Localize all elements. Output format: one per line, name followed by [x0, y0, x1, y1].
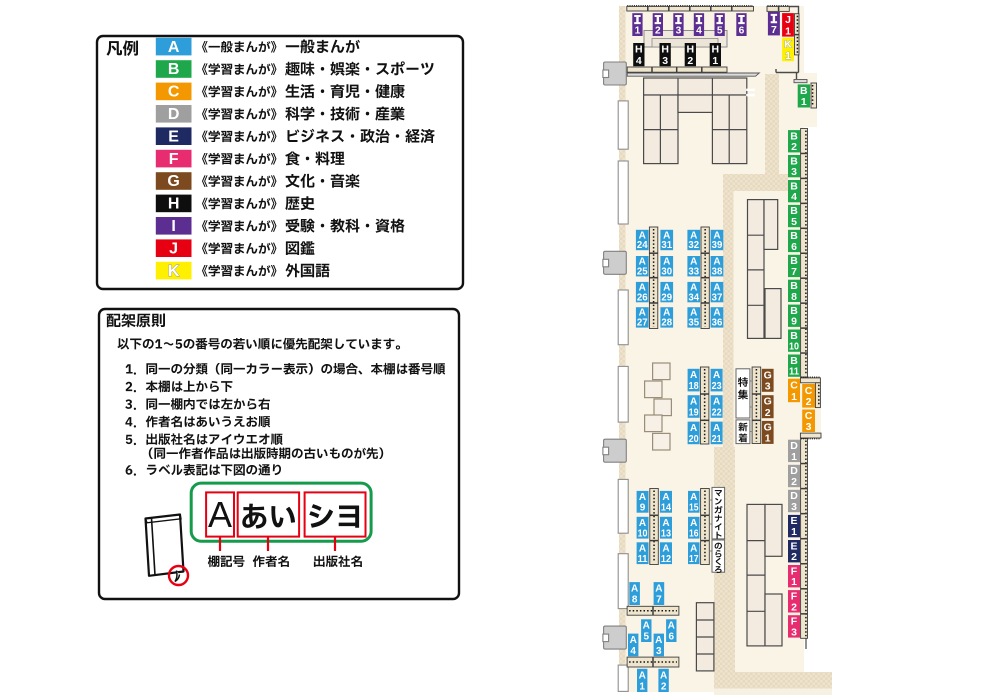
svg-text:1: 1: [785, 50, 791, 62]
svg-text:H: H: [712, 44, 720, 56]
svg-text:21: 21: [712, 434, 722, 445]
svg-text:29: 29: [661, 292, 672, 303]
svg-text:A: A: [639, 543, 646, 554]
svg-text:2: 2: [791, 476, 797, 488]
svg-text:A: A: [713, 370, 720, 381]
svg-text:A: A: [168, 39, 180, 56]
svg-text:13: 13: [661, 528, 671, 539]
svg-text:31: 31: [661, 240, 672, 251]
svg-text:1: 1: [791, 576, 797, 588]
svg-text:14: 14: [661, 503, 671, 514]
svg-text:J: J: [785, 14, 791, 26]
svg-text:6: 6: [739, 26, 745, 37]
svg-text:2: 2: [791, 551, 797, 563]
svg-text:16: 16: [689, 528, 699, 539]
svg-text:5: 5: [791, 216, 797, 228]
svg-text:G: G: [167, 173, 179, 190]
svg-text:2: 2: [765, 407, 771, 419]
svg-text:1: 1: [791, 391, 797, 403]
svg-text:A: A: [690, 518, 697, 529]
svg-text:A: A: [713, 423, 720, 434]
svg-text:2: 2: [687, 55, 693, 67]
svg-text:5: 5: [644, 632, 650, 643]
svg-text:H: H: [168, 196, 180, 213]
svg-text:22: 22: [712, 408, 722, 419]
svg-text:A: A: [690, 492, 697, 503]
svg-text:15: 15: [689, 503, 699, 514]
svg-text:6: 6: [669, 632, 675, 643]
svg-text:7: 7: [771, 24, 777, 36]
svg-text:1: 1: [639, 682, 645, 693]
svg-text:H: H: [661, 44, 669, 56]
svg-text:A: A: [690, 423, 697, 434]
svg-text:1: 1: [801, 96, 807, 108]
svg-text:2: 2: [661, 682, 667, 693]
svg-text:A: A: [639, 492, 646, 503]
svg-text:1: 1: [791, 451, 797, 463]
svg-text:30: 30: [661, 266, 672, 277]
svg-text:3: 3: [656, 646, 662, 657]
svg-text:25: 25: [637, 266, 648, 277]
svg-text:3: 3: [791, 166, 797, 178]
svg-text:39: 39: [712, 240, 723, 251]
svg-text:H: H: [635, 44, 643, 56]
svg-text:A: A: [655, 584, 662, 595]
svg-text:A: A: [630, 635, 637, 646]
svg-text:3: 3: [806, 421, 812, 433]
svg-text:26: 26: [637, 292, 648, 303]
svg-text:11: 11: [638, 554, 648, 565]
svg-text:K: K: [168, 263, 180, 280]
svg-text:A: A: [639, 670, 646, 681]
svg-text:4: 4: [696, 26, 702, 37]
svg-text:4: 4: [630, 646, 636, 657]
svg-text:B: B: [168, 61, 180, 78]
svg-text:A: A: [660, 670, 667, 681]
svg-text:28: 28: [661, 318, 672, 329]
svg-text:18: 18: [689, 381, 699, 392]
svg-text:C: C: [790, 379, 798, 391]
svg-text:4: 4: [636, 55, 642, 67]
svg-text:A: A: [668, 621, 675, 632]
svg-text:35: 35: [688, 318, 699, 329]
svg-text:1: 1: [712, 55, 718, 67]
svg-text:3: 3: [676, 26, 682, 37]
svg-text:27: 27: [637, 318, 648, 329]
svg-text:3: 3: [791, 626, 797, 638]
svg-text:1: 1: [791, 526, 797, 538]
svg-text:I: I: [171, 218, 175, 235]
svg-text:C: C: [805, 385, 813, 397]
svg-text:10: 10: [638, 528, 648, 539]
svg-text:24: 24: [637, 240, 648, 251]
svg-text:9: 9: [640, 503, 646, 514]
svg-text:A: A: [690, 370, 697, 381]
svg-text:C: C: [168, 84, 180, 101]
svg-text:A: A: [655, 635, 662, 646]
svg-text:A: A: [639, 518, 646, 529]
svg-text:20: 20: [689, 434, 699, 445]
svg-text:32: 32: [688, 240, 699, 251]
svg-text:A: A: [643, 621, 650, 632]
svg-text:K: K: [784, 38, 792, 50]
svg-text:2: 2: [791, 141, 797, 153]
svg-text:A: A: [631, 584, 638, 595]
svg-text:7: 7: [656, 595, 662, 606]
svg-text:A: A: [713, 397, 720, 408]
svg-text:34: 34: [688, 292, 699, 303]
svg-text:38: 38: [712, 266, 723, 277]
svg-text:A: A: [662, 518, 669, 529]
svg-text:B: B: [800, 85, 808, 97]
svg-text:3: 3: [662, 55, 668, 67]
svg-text:5: 5: [717, 26, 723, 37]
svg-text:A: A: [662, 543, 669, 554]
svg-text:A: A: [208, 494, 232, 535]
svg-text:8: 8: [791, 291, 797, 303]
svg-text:1: 1: [765, 433, 771, 445]
svg-text:10: 10: [789, 341, 799, 353]
svg-text:23: 23: [712, 381, 722, 392]
svg-text:7: 7: [791, 266, 797, 278]
svg-text:33: 33: [688, 266, 699, 277]
svg-text:6: 6: [791, 241, 797, 253]
svg-text:11: 11: [789, 366, 799, 378]
svg-text:19: 19: [689, 408, 699, 419]
svg-text:8: 8: [632, 595, 638, 606]
svg-text:2: 2: [791, 601, 797, 613]
svg-text:A: A: [690, 543, 697, 554]
svg-text:1: 1: [635, 26, 641, 37]
svg-text:17: 17: [689, 554, 699, 565]
svg-text:D: D: [168, 106, 180, 123]
svg-text:F: F: [169, 151, 179, 168]
svg-text:4: 4: [791, 191, 797, 203]
svg-text:A: A: [690, 397, 697, 408]
svg-text:A: A: [662, 492, 669, 503]
svg-text:9: 9: [791, 316, 797, 328]
svg-text:H: H: [687, 44, 695, 56]
svg-text:J: J: [169, 240, 178, 257]
svg-text:37: 37: [712, 292, 723, 303]
svg-text:36: 36: [712, 318, 723, 329]
svg-text:3: 3: [765, 381, 771, 393]
svg-text:1: 1: [785, 25, 791, 37]
svg-text:E: E: [168, 128, 179, 145]
svg-text:2: 2: [806, 396, 812, 408]
svg-text:3: 3: [791, 501, 797, 513]
svg-text:2: 2: [655, 26, 661, 37]
svg-text:12: 12: [661, 554, 671, 565]
